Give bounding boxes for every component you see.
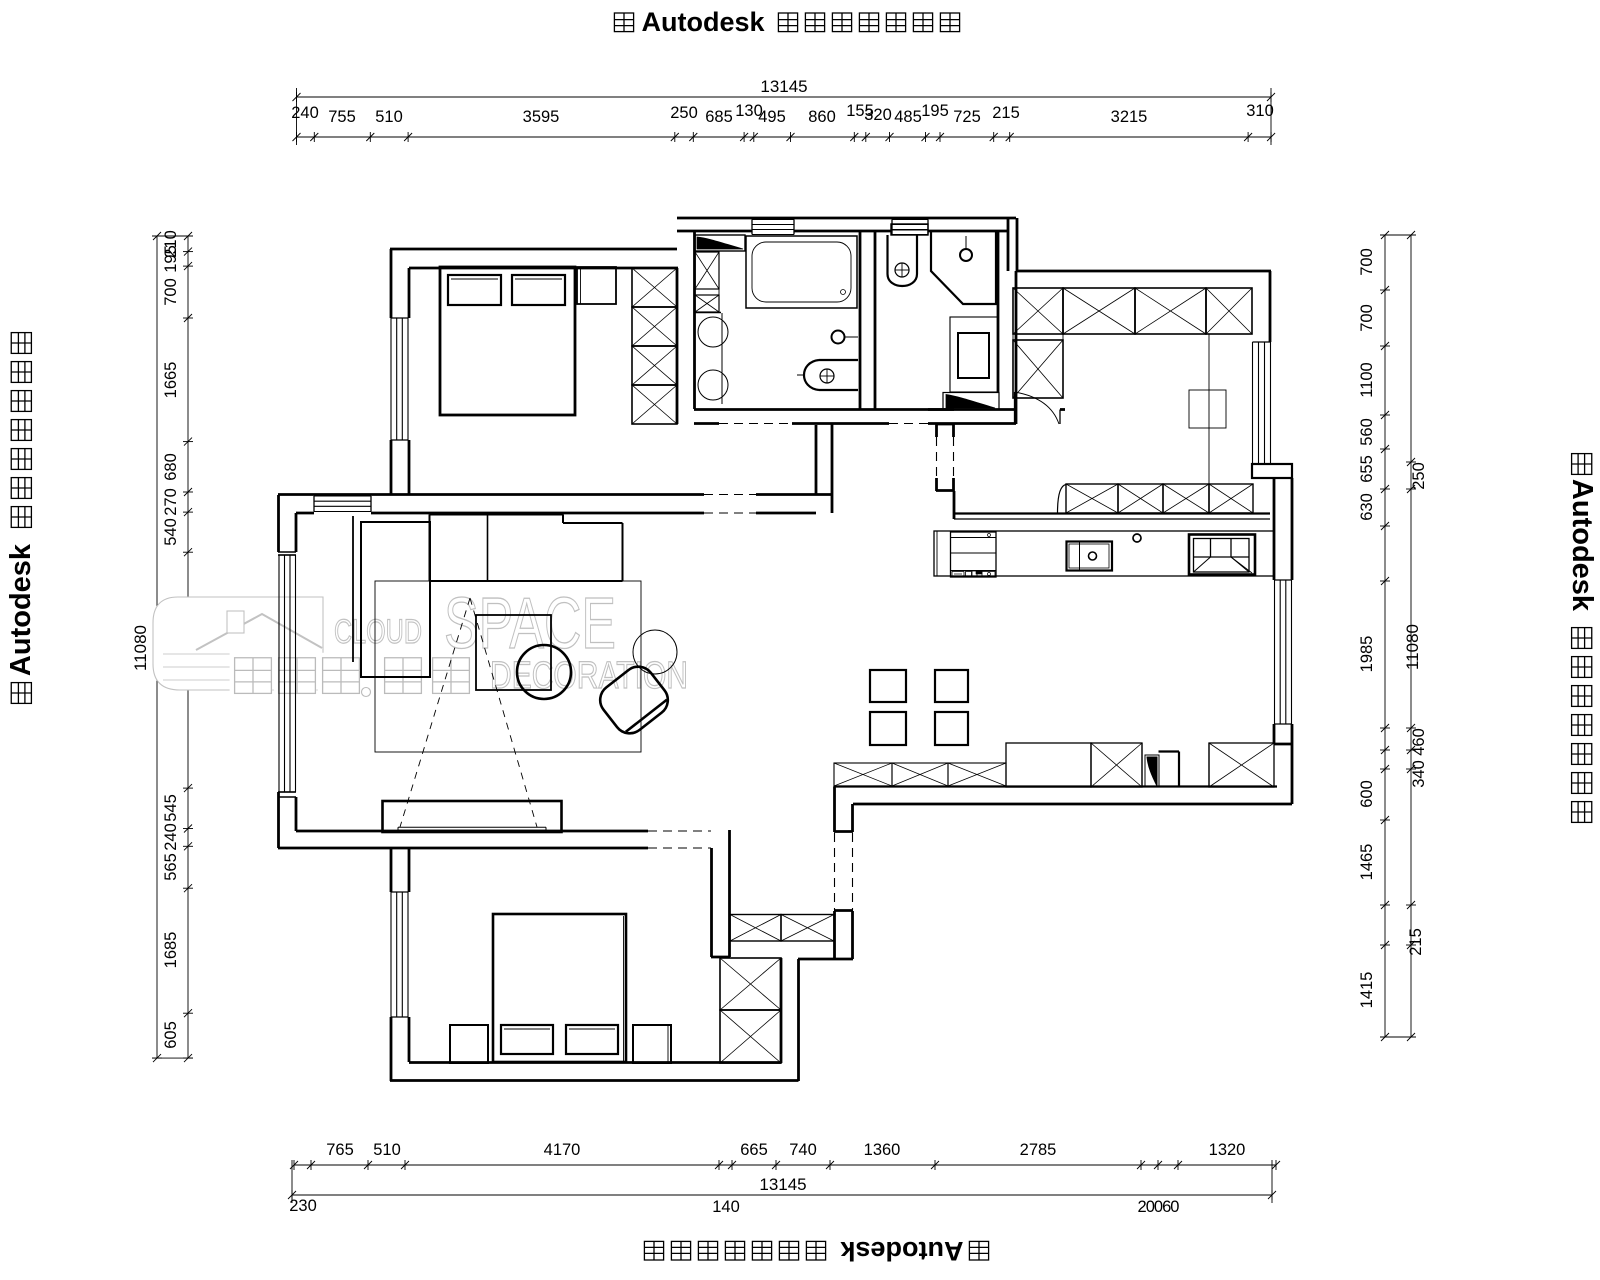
- svg-text:215: 215: [992, 104, 1020, 122]
- svg-text:Autodesk: Autodesk: [840, 1236, 964, 1266]
- svg-text:340: 340: [1410, 760, 1428, 788]
- svg-text:605: 605: [162, 1021, 180, 1049]
- svg-text:4170: 4170: [544, 1141, 581, 1159]
- svg-text:680: 680: [162, 453, 180, 481]
- svg-text:Autodesk: Autodesk: [1566, 479, 1598, 612]
- svg-text:250: 250: [670, 104, 698, 122]
- svg-text:1100: 1100: [1358, 362, 1376, 397]
- svg-text:Autodesk: Autodesk: [641, 7, 765, 37]
- svg-text:510: 510: [375, 108, 403, 126]
- svg-text:11080: 11080: [131, 625, 150, 671]
- svg-text:240: 240: [162, 823, 180, 851]
- svg-text:215: 215: [1407, 928, 1425, 956]
- svg-text:560: 560: [1358, 418, 1376, 446]
- svg-text:310: 310: [1246, 102, 1274, 120]
- svg-text:CLOUD: CLOUD: [334, 613, 422, 651]
- svg-text:740: 740: [789, 1141, 817, 1159]
- svg-text:140: 140: [712, 1198, 740, 1216]
- svg-text:1685: 1685: [162, 932, 180, 969]
- svg-text:1985: 1985: [1358, 636, 1376, 673]
- svg-text:545: 545: [162, 794, 180, 822]
- svg-text:320: 320: [864, 106, 892, 124]
- svg-text:SPACE: SPACE: [444, 584, 616, 664]
- svg-text:685: 685: [705, 108, 733, 126]
- svg-text:460: 460: [1410, 728, 1428, 756]
- svg-text:1320: 1320: [1209, 1141, 1246, 1159]
- svg-text:665: 665: [740, 1141, 768, 1159]
- svg-text:725: 725: [953, 108, 981, 126]
- svg-text:630: 630: [1358, 493, 1376, 521]
- svg-text:1360: 1360: [864, 1141, 901, 1159]
- svg-text:485: 485: [894, 108, 922, 126]
- svg-text:270: 270: [162, 488, 180, 516]
- svg-text:565: 565: [162, 853, 180, 881]
- svg-text:13145: 13145: [760, 77, 807, 96]
- svg-text:700: 700: [1358, 304, 1376, 332]
- svg-text:20060: 20060: [1138, 1198, 1180, 1216]
- svg-text:Autodesk: Autodesk: [5, 543, 37, 676]
- svg-text:195: 195: [921, 102, 949, 120]
- svg-text:700: 700: [162, 278, 180, 306]
- svg-text:510: 510: [373, 1141, 401, 1159]
- svg-text:1415: 1415: [1358, 972, 1376, 1009]
- svg-text:600: 600: [1358, 780, 1376, 808]
- svg-text:11080: 11080: [1403, 624, 1422, 670]
- svg-text:13145: 13145: [759, 1175, 806, 1194]
- svg-text:860: 860: [808, 108, 836, 126]
- svg-text:765: 765: [326, 1141, 354, 1159]
- svg-text:240: 240: [291, 104, 319, 122]
- svg-text:1465: 1465: [1358, 844, 1376, 881]
- svg-text:230: 230: [289, 1197, 317, 1215]
- svg-text:2785: 2785: [1020, 1141, 1057, 1159]
- svg-text:3595: 3595: [523, 108, 560, 126]
- svg-text:755: 755: [328, 108, 356, 126]
- svg-text:1665: 1665: [162, 362, 180, 399]
- svg-text:540: 540: [162, 518, 180, 546]
- svg-text:495: 495: [758, 108, 786, 126]
- svg-text:700: 700: [1358, 248, 1376, 276]
- svg-text:250: 250: [1410, 462, 1428, 490]
- svg-text:195: 195: [162, 245, 180, 273]
- svg-text:3215: 3215: [1111, 108, 1148, 126]
- svg-text:655: 655: [1358, 455, 1376, 483]
